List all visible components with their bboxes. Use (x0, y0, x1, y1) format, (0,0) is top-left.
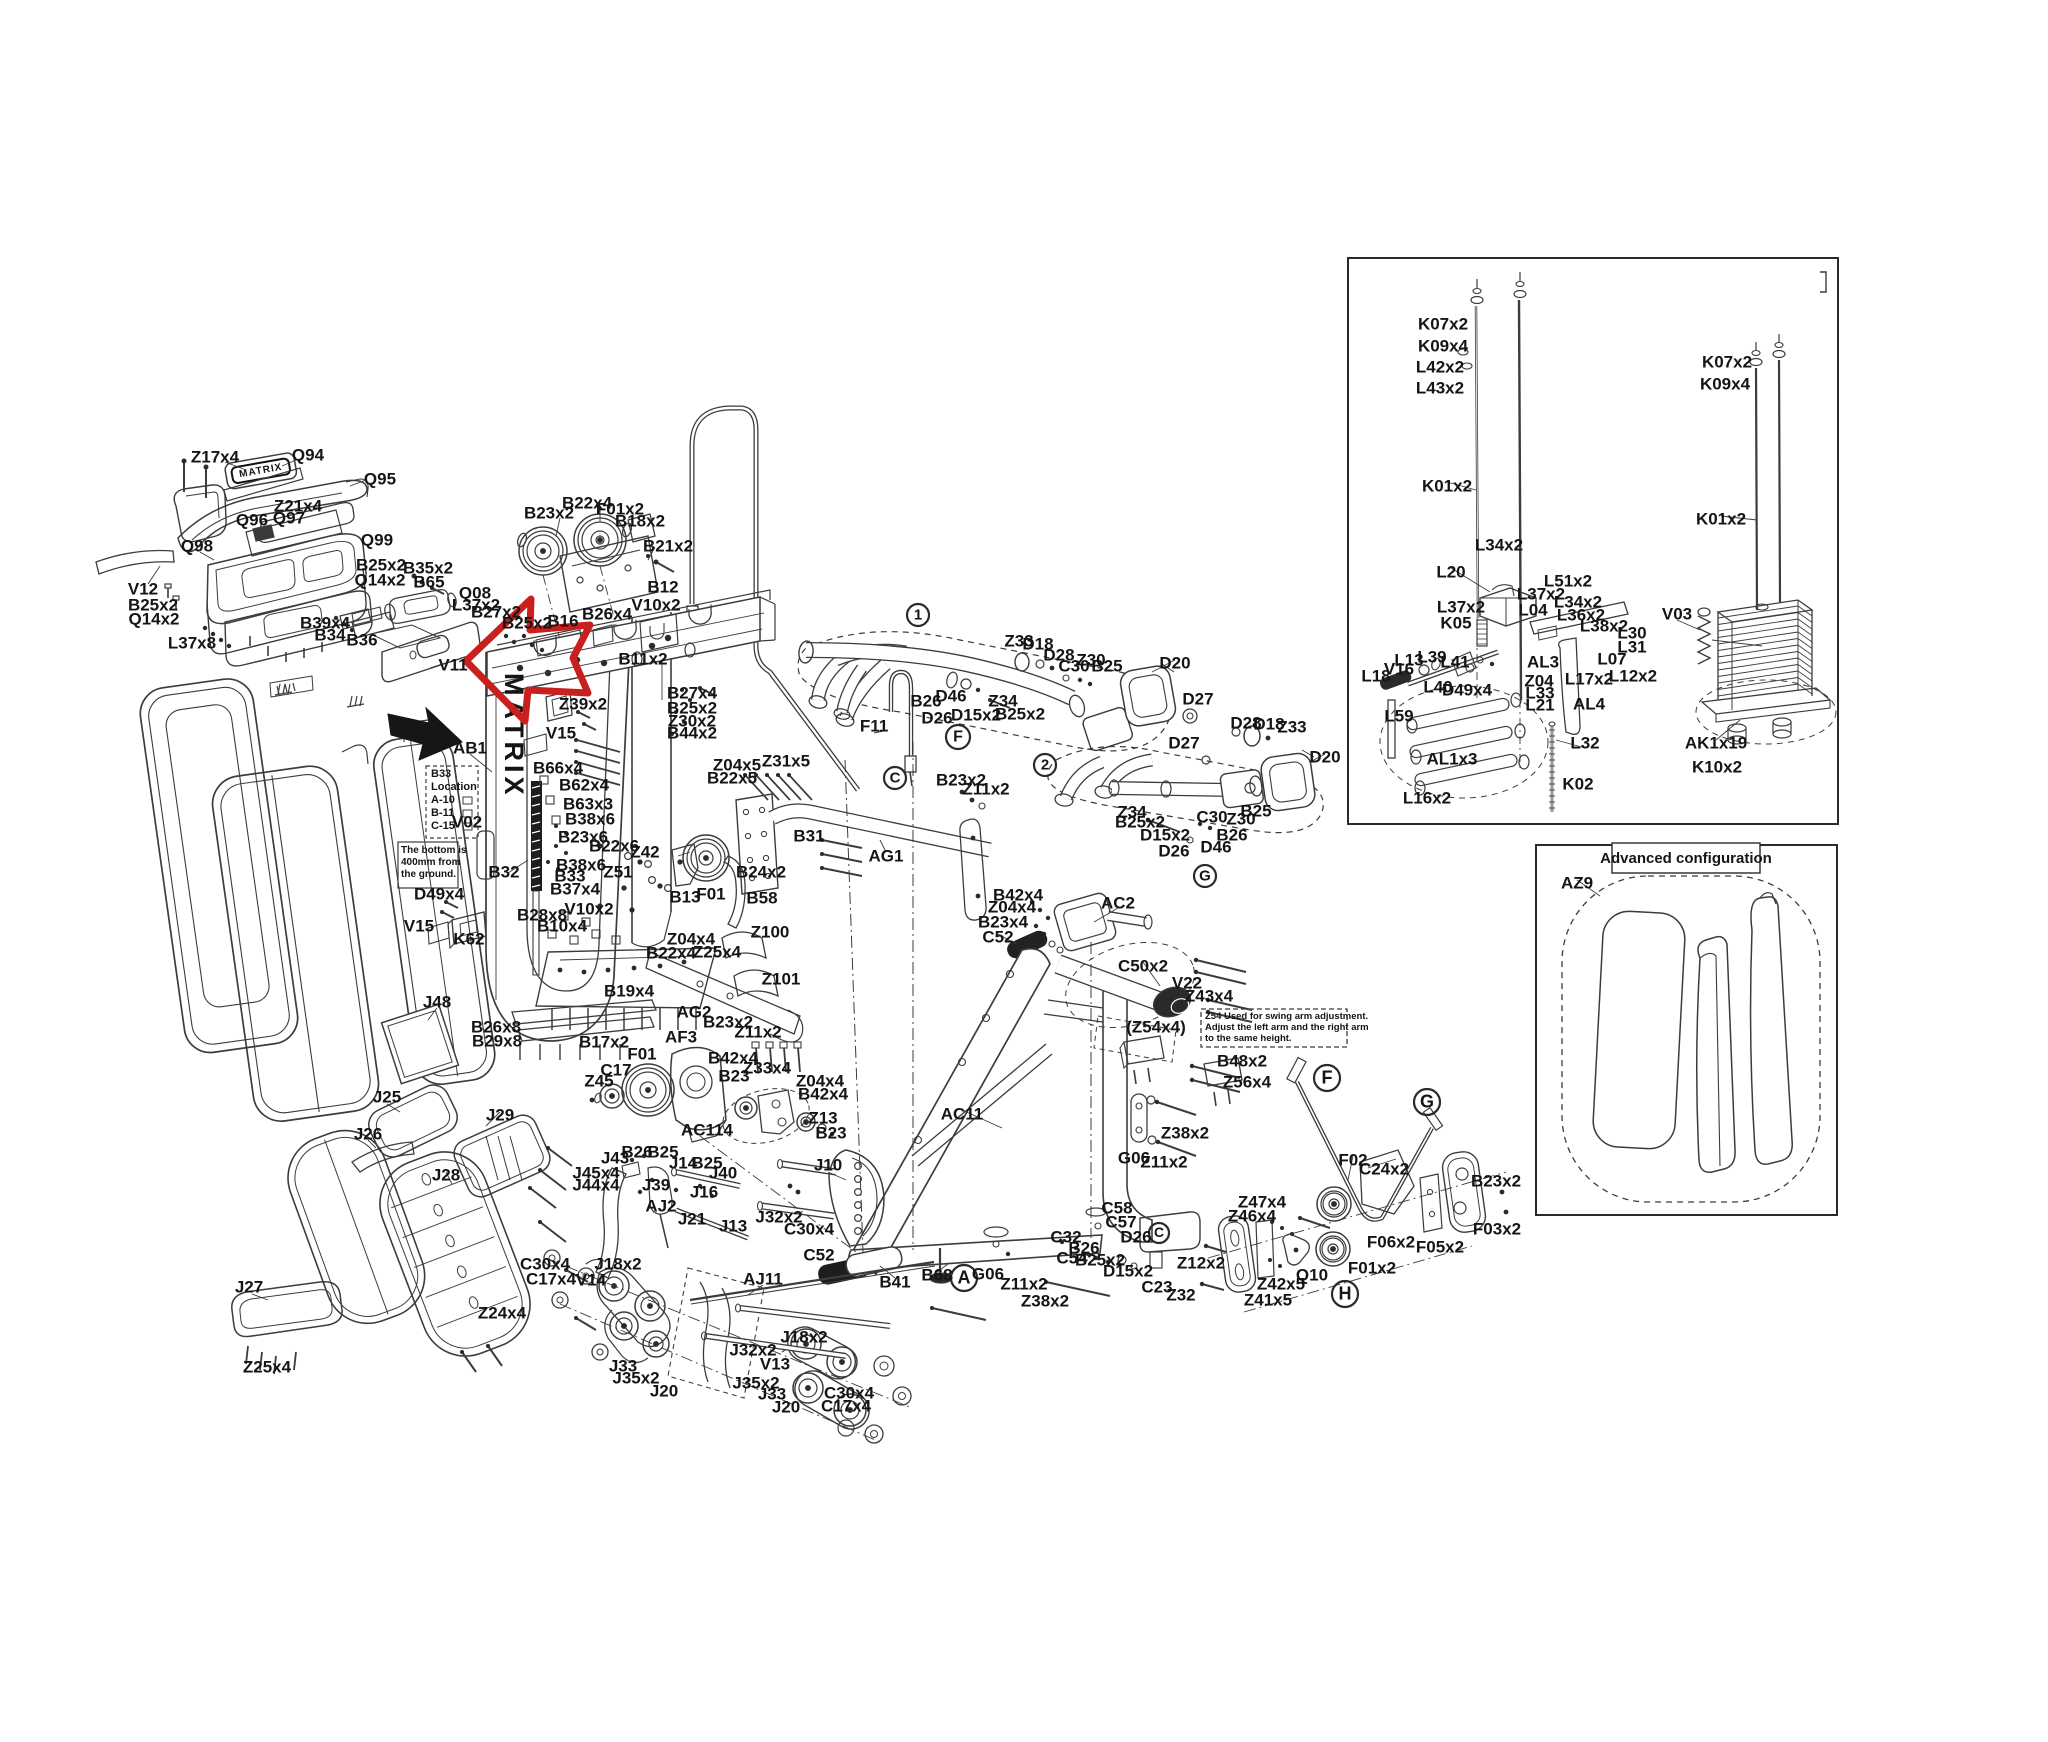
svg-text:B19x4: B19x4 (604, 981, 655, 1000)
svg-text:Z17x4: Z17x4 (191, 447, 240, 466)
svg-text:J39: J39 (642, 1175, 670, 1194)
svg-text:C50x2: C50x2 (1118, 956, 1168, 975)
svg-text:Z11x2: Z11x2 (962, 779, 1009, 798)
svg-text:J40: J40 (709, 1163, 737, 1182)
svg-text:to the same height.: to the same height. (1205, 1033, 1292, 1044)
svg-text:K10x2: K10x2 (1692, 757, 1742, 776)
svg-text:Z41x5: Z41x5 (1244, 1290, 1292, 1309)
svg-text:B16: B16 (547, 611, 578, 630)
svg-text:D20: D20 (1159, 653, 1190, 672)
svg-text:B44x2: B44x2 (667, 723, 717, 742)
svg-text:AJ2: AJ2 (645, 1196, 676, 1215)
svg-text:C30x4: C30x4 (784, 1219, 835, 1238)
svg-text:K05: K05 (1440, 613, 1471, 632)
svg-text:K09x4: K09x4 (1700, 374, 1751, 393)
svg-text:J20: J20 (772, 1397, 800, 1416)
svg-text:D27: D27 (1182, 689, 1213, 708)
svg-text:L17x2: L17x2 (1565, 669, 1613, 688)
svg-text:C57: C57 (1105, 1212, 1136, 1231)
svg-text:J44x4: J44x4 (572, 1175, 620, 1194)
svg-text:AF3: AF3 (665, 1027, 697, 1046)
svg-text:L18: L18 (1361, 666, 1390, 685)
svg-text:AG1: AG1 (869, 846, 904, 865)
svg-text:2: 2 (1041, 756, 1049, 773)
svg-text:B23x2: B23x2 (1471, 1171, 1521, 1190)
svg-text:Z101: Z101 (762, 969, 801, 988)
svg-text:B33: B33 (431, 768, 451, 780)
svg-text:Q99: Q99 (361, 530, 393, 549)
svg-text:G06: G06 (972, 1264, 1004, 1283)
svg-text:Z33: Z33 (1277, 717, 1306, 736)
svg-text:B42x4: B42x4 (708, 1048, 759, 1067)
svg-text:B65: B65 (413, 572, 444, 591)
svg-text:the ground.: the ground. (401, 869, 456, 880)
svg-text:Q98: Q98 (181, 536, 213, 555)
svg-text:L12x2: L12x2 (1609, 666, 1657, 685)
svg-text:C: C (890, 769, 901, 786)
svg-text:K02: K02 (1562, 774, 1593, 793)
svg-text:Z51: Z51 (603, 862, 632, 881)
svg-text:V11: V11 (438, 655, 467, 674)
svg-text:C52: C52 (982, 927, 1013, 946)
svg-text:D26: D26 (921, 708, 952, 727)
svg-text:V14: V14 (576, 1270, 607, 1289)
svg-text:B-11: B-11 (431, 807, 454, 819)
svg-text:J10: J10 (814, 1155, 842, 1174)
svg-text:AJ11: AJ11 (743, 1269, 783, 1288)
svg-text:A: A (958, 1267, 971, 1287)
svg-text:B41: B41 (879, 1272, 910, 1291)
svg-text:B58: B58 (746, 888, 777, 907)
svg-text:L32: L32 (1570, 733, 1599, 752)
svg-text:V13: V13 (760, 1354, 790, 1373)
svg-text:J27: J27 (235, 1277, 263, 1296)
svg-text:V15: V15 (404, 916, 434, 935)
svg-text:H: H (1339, 1283, 1352, 1303)
svg-text:Z25x4: Z25x4 (693, 942, 742, 961)
svg-text:D46: D46 (935, 686, 966, 705)
svg-text:D49x4: D49x4 (414, 884, 465, 903)
svg-text:B17x2: B17x2 (579, 1032, 629, 1051)
svg-text:K07x2: K07x2 (1702, 352, 1752, 371)
svg-text:C17x4: C17x4 (526, 1269, 577, 1288)
svg-text:Q10: Q10 (1296, 1265, 1328, 1284)
svg-text:L20: L20 (1436, 562, 1465, 581)
svg-text:Z54 Used for swing arm adjustm: Z54 Used for swing arm adjustment. (1205, 1011, 1368, 1022)
svg-text:AC2: AC2 (1101, 893, 1135, 912)
svg-text:C24x2: C24x2 (1359, 1159, 1409, 1178)
svg-text:Z34: Z34 (988, 691, 1018, 710)
svg-text:B38x6: B38x6 (565, 809, 615, 828)
svg-text:L43x2: L43x2 (1416, 378, 1464, 397)
svg-text:Adjust the left arm and the ri: Adjust the left arm and the right arm (1205, 1022, 1369, 1033)
svg-text:C52: C52 (803, 1245, 834, 1264)
svg-text:B10x4: B10x4 (537, 916, 588, 935)
svg-text:B11x2: B11x2 (618, 649, 667, 668)
svg-text:D46: D46 (1200, 837, 1231, 856)
svg-text:J20: J20 (650, 1381, 678, 1400)
svg-text:B62x4: B62x4 (559, 775, 610, 794)
svg-text:Z38x2: Z38x2 (1161, 1123, 1209, 1142)
svg-text:L37x8: L37x8 (168, 633, 216, 652)
svg-text:J28: J28 (432, 1165, 460, 1184)
svg-text:B42x4: B42x4 (798, 1084, 849, 1103)
svg-text:L41: L41 (1440, 652, 1469, 671)
svg-text:B25: B25 (1240, 801, 1271, 820)
svg-text:F01: F01 (627, 1044, 656, 1063)
svg-text:L04: L04 (1518, 600, 1548, 619)
svg-text:V02: V02 (452, 812, 482, 831)
svg-text:L21: L21 (1525, 695, 1554, 714)
svg-text:B25x2: B25x2 (502, 613, 552, 632)
svg-text:K07x2: K07x2 (1418, 314, 1468, 333)
svg-text:Q14x2: Q14x2 (128, 609, 179, 628)
svg-text:B34: B34 (314, 625, 346, 644)
svg-text:J29: J29 (486, 1105, 514, 1124)
svg-text:Z25x4: Z25x4 (243, 1357, 292, 1376)
svg-text:K01x2: K01x2 (1422, 476, 1472, 495)
svg-text:J26: J26 (354, 1124, 382, 1143)
svg-text:Q96: Q96 (236, 510, 268, 529)
svg-text:Z39x2: Z39x2 (559, 694, 607, 713)
svg-text:Z46x4: Z46x4 (1228, 1206, 1277, 1225)
svg-text:AB1: AB1 (453, 738, 487, 757)
svg-text:Z11x2: Z11x2 (734, 1022, 781, 1041)
svg-text:C30: C30 (1058, 656, 1089, 675)
svg-text:F03x2: F03x2 (1473, 1219, 1521, 1238)
svg-text:B32: B32 (488, 862, 519, 881)
svg-text:V03: V03 (1662, 604, 1692, 623)
svg-text:(Z54x4): (Z54x4) (1126, 1017, 1186, 1036)
svg-text:Z38x2: Z38x2 (1021, 1291, 1069, 1310)
svg-text:B18x2: B18x2 (615, 511, 665, 530)
svg-text:Advanced configuration: Advanced configuration (1600, 850, 1772, 867)
svg-text:Q14x2: Q14x2 (354, 570, 405, 589)
svg-text:B12: B12 (647, 577, 678, 596)
svg-text:Q97: Q97 (273, 508, 305, 527)
svg-text:C30: C30 (1196, 807, 1227, 826)
svg-text:L42x2: L42x2 (1416, 357, 1464, 376)
svg-text:J13: J13 (719, 1216, 747, 1235)
svg-text:AC11: AC11 (941, 1104, 984, 1123)
svg-text:F11: F11 (860, 716, 888, 735)
svg-text:L34x2: L34x2 (1475, 535, 1523, 554)
svg-text:J21: J21 (678, 1209, 706, 1228)
svg-text:Q95: Q95 (364, 469, 396, 488)
svg-text:D26: D26 (1158, 841, 1189, 860)
svg-text:F06x2: F06x2 (1367, 1232, 1415, 1251)
svg-text:AL3: AL3 (1527, 652, 1559, 671)
svg-text:G: G (1199, 867, 1211, 884)
svg-text:L59: L59 (1384, 706, 1413, 725)
svg-text:B25: B25 (1091, 656, 1122, 675)
svg-text:Z31x5: Z31x5 (762, 751, 810, 770)
svg-text:Z45: Z45 (584, 1071, 613, 1090)
svg-text:B22x5: B22x5 (707, 768, 757, 787)
svg-text:F01: F01 (696, 884, 725, 903)
svg-text:J48: J48 (423, 992, 451, 1011)
svg-text:B31: B31 (793, 826, 824, 845)
svg-text:J18x2: J18x2 (780, 1327, 827, 1346)
svg-text:AK1x19: AK1x19 (1685, 733, 1747, 752)
svg-text:G: G (1420, 1091, 1434, 1111)
svg-text:B21x2: B21x2 (643, 536, 693, 555)
svg-text:B24x2: B24x2 (736, 862, 786, 881)
svg-text:AL4: AL4 (1573, 694, 1606, 713)
svg-text:Z42: Z42 (630, 842, 659, 861)
svg-text:Location: Location (431, 781, 477, 793)
svg-text:C: C (1154, 1224, 1164, 1240)
svg-text:AZ9: AZ9 (1561, 873, 1593, 892)
svg-text:B23: B23 (815, 1123, 846, 1142)
svg-text:J16: J16 (690, 1182, 718, 1201)
svg-text:Z56x4: Z56x4 (1223, 1072, 1272, 1091)
svg-text:K01x2: K01x2 (1696, 509, 1746, 528)
svg-text:AC114: AC114 (681, 1120, 734, 1139)
svg-text:Z32: Z32 (1166, 1285, 1195, 1304)
svg-text:D27: D27 (1168, 733, 1199, 752)
svg-text:The bottom is: The bottom is (401, 845, 467, 856)
svg-text:B23: B23 (718, 1066, 749, 1085)
svg-text:L16x2: L16x2 (1403, 788, 1451, 807)
svg-text:Z12x2: Z12x2 (1177, 1253, 1225, 1272)
svg-text:D20: D20 (1309, 747, 1340, 766)
svg-text:F01x2: F01x2 (1348, 1258, 1396, 1277)
svg-text:B68: B68 (921, 1265, 952, 1284)
svg-text:G06: G06 (1118, 1148, 1150, 1167)
svg-text:1: 1 (914, 606, 922, 623)
svg-text:J25: J25 (373, 1087, 401, 1106)
svg-text:B37x4: B37x4 (550, 879, 601, 898)
svg-text:A-10: A-10 (431, 794, 455, 806)
svg-text:K09x4: K09x4 (1418, 336, 1469, 355)
svg-text:B29x8: B29x8 (472, 1031, 522, 1050)
svg-text:Z100: Z100 (751, 922, 790, 941)
svg-text:V15: V15 (546, 723, 576, 742)
svg-text:K62: K62 (453, 929, 484, 948)
svg-text:AL1x3: AL1x3 (1426, 749, 1477, 768)
svg-text:Q94: Q94 (292, 445, 325, 464)
svg-text:B48x2: B48x2 (1217, 1051, 1267, 1070)
svg-text:B22x4: B22x4 (646, 943, 697, 962)
svg-text:Z43x4: Z43x4 (1185, 986, 1234, 1005)
svg-text:V10x2: V10x2 (631, 595, 680, 614)
svg-text:F: F (953, 729, 963, 746)
svg-text:F: F (1322, 1067, 1333, 1087)
svg-text:F05x2: F05x2 (1416, 1237, 1464, 1256)
svg-text:L40: L40 (1423, 677, 1452, 696)
svg-text:B36: B36 (346, 630, 377, 649)
svg-text:Z24x4: Z24x4 (478, 1303, 527, 1322)
svg-text:400mm from: 400mm from (401, 857, 461, 868)
svg-text:B26x4: B26x4 (582, 604, 633, 623)
svg-text:C17x4: C17x4 (821, 1396, 872, 1415)
